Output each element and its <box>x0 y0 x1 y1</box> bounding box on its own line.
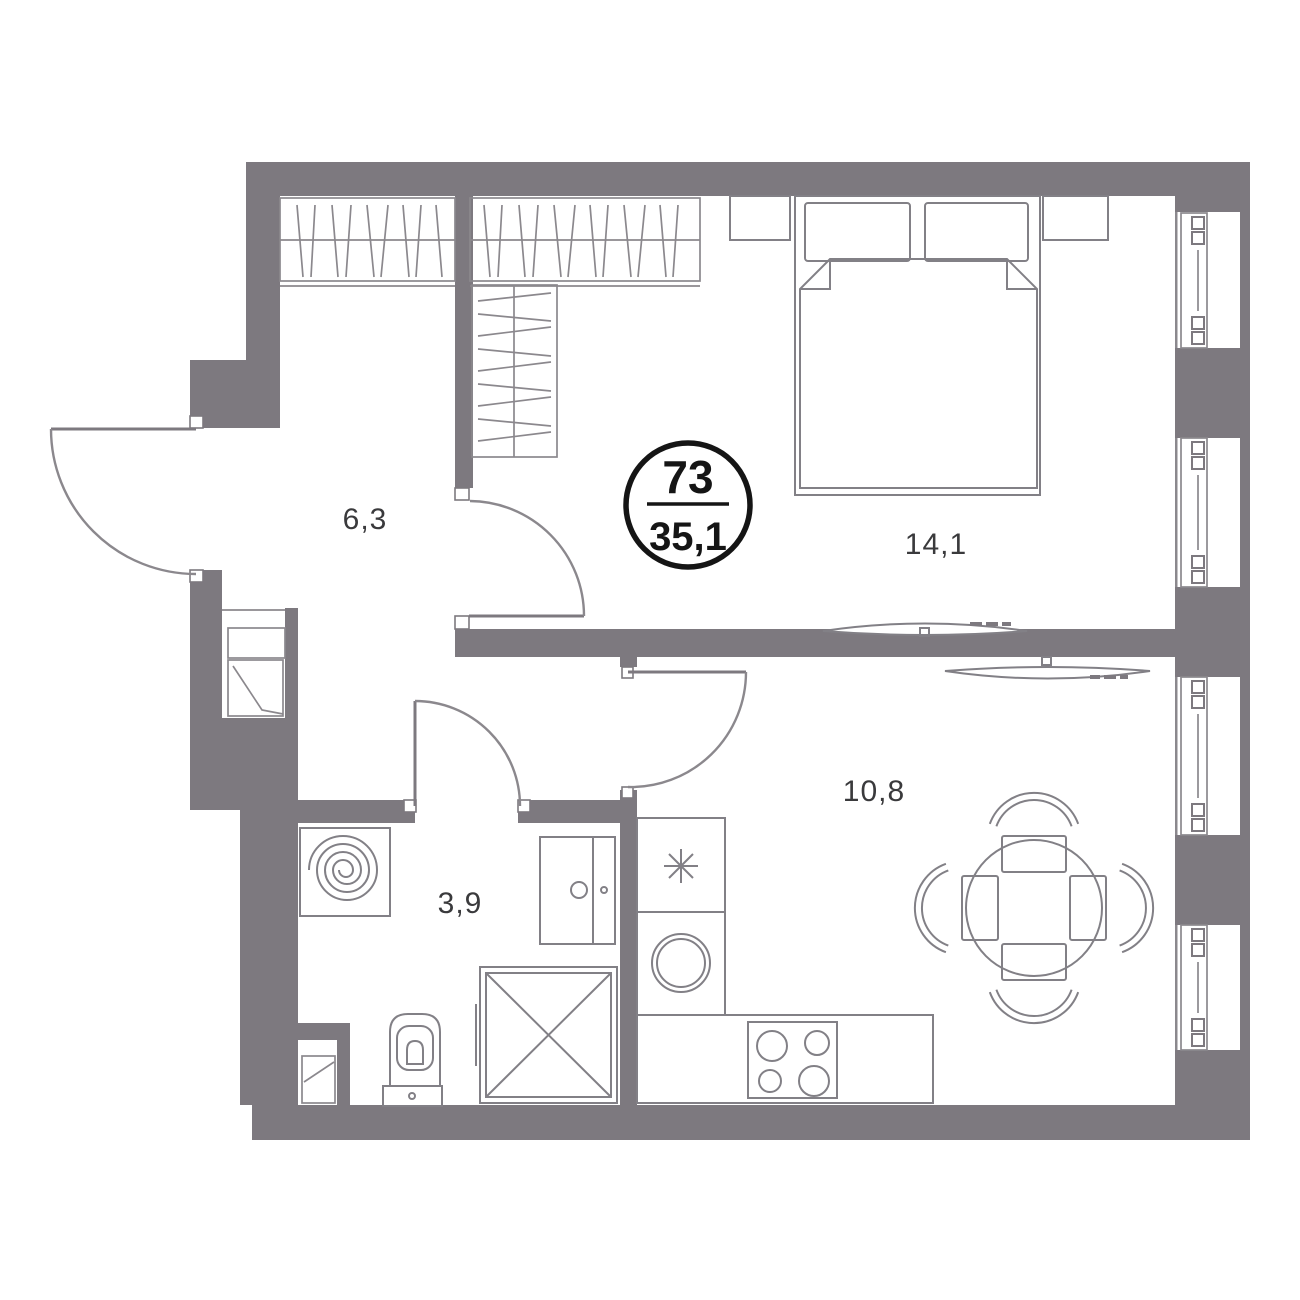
room-label-bedroom: 14,1 <box>905 528 967 561</box>
jamb-entrance-bottom <box>190 570 203 582</box>
room-label-kitchen-living: 10,8 <box>843 775 905 808</box>
wardrobe-hallway <box>280 198 455 286</box>
dining-table <box>966 840 1102 976</box>
window-4 <box>1181 925 1207 1050</box>
unit-number: 73 <box>662 451 713 503</box>
wardrobes <box>280 198 700 457</box>
wall-bath-north-left <box>295 800 415 823</box>
room-label-hallway: 6,3 <box>343 503 388 536</box>
wall-bath-north-right <box>518 800 637 823</box>
unit-total-area: 35,1 <box>649 515 727 559</box>
facade-pillar-2 <box>1175 587 1250 677</box>
window-2 <box>1181 438 1207 587</box>
kitchen-fixtures <box>637 657 1153 1103</box>
wall-corner-top-right <box>1175 162 1250 212</box>
room-label-bathroom: 3,9 <box>438 887 483 920</box>
window-3 <box>1181 677 1207 835</box>
shower-cabin <box>476 967 617 1103</box>
wardrobe-tall <box>472 285 557 457</box>
kitchen-counter-bottom <box>637 1015 933 1103</box>
pillow-left <box>805 203 910 261</box>
jamb-bedroom-top <box>455 488 469 500</box>
kitchen-counter-left <box>637 818 725 1015</box>
floor-plan: 6,3 14,1 10,8 3,9 73 35,1 <box>0 0 1300 1300</box>
bedroom-furniture <box>730 196 1108 636</box>
facade-pillar-3 <box>1175 835 1250 925</box>
toilet <box>383 1014 442 1106</box>
entrance-door <box>51 429 196 574</box>
chair-right <box>1070 864 1153 952</box>
utility-shaft-upper <box>228 628 285 716</box>
wall-bottom <box>252 1105 1250 1140</box>
wall-left-upper <box>246 196 280 360</box>
bedroom-door <box>469 501 584 616</box>
kitchen-door <box>628 672 746 787</box>
wall-bath-kitchen <box>620 790 637 1105</box>
drum-spiral <box>309 836 377 900</box>
blanket <box>800 259 1037 488</box>
window-1 <box>1181 213 1207 348</box>
kitchen-sink <box>652 934 710 992</box>
pillow-right <box>925 203 1028 261</box>
washing-machine <box>300 828 390 916</box>
nightstand-left <box>730 196 790 240</box>
double-bed <box>795 196 1040 495</box>
facade-pillar-1 <box>1175 348 1250 438</box>
wall-left-block <box>190 718 298 810</box>
jamb-bedroom-bottom <box>455 616 469 629</box>
walls <box>190 162 1250 1140</box>
floor-plan-page: 6,3 14,1 10,8 3,9 73 35,1 <box>0 0 1300 1300</box>
bathroom-door <box>415 701 520 806</box>
nightstand-right <box>1043 196 1108 240</box>
unit-badge: 73 35,1 <box>626 443 750 567</box>
vanity-cabinet <box>540 837 615 944</box>
chair-bottom <box>990 944 1078 1023</box>
tv-kitchen <box>945 657 1150 679</box>
wall-shaft2-stub <box>337 1040 350 1105</box>
stove-4-burners <box>748 1022 837 1098</box>
utility-shaft-lower <box>302 1056 335 1103</box>
jamb-kitchen-bottom <box>622 787 633 798</box>
wall-shaft2-lintel <box>295 1023 350 1040</box>
chair-top <box>990 793 1078 872</box>
chair-left <box>915 864 998 952</box>
wardrobe-bedroom <box>470 198 700 286</box>
jamb-entrance-top <box>190 416 203 428</box>
wall-left-lower <box>240 810 298 1105</box>
wall-bedroom-kitchen <box>455 629 1175 657</box>
wall-top <box>246 162 1250 196</box>
fridge-snowflake-icon <box>664 849 698 883</box>
room-labels: 6,3 14,1 10,8 3,9 <box>343 503 968 920</box>
